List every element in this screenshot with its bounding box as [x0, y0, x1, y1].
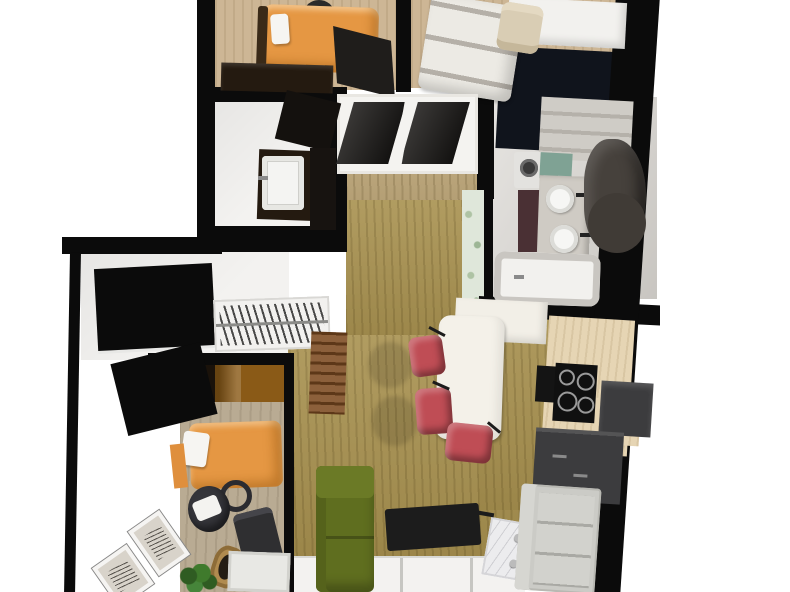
bathtub-basin	[503, 260, 590, 299]
washer-door-icon	[520, 159, 538, 177]
kitchen	[520, 310, 670, 510]
main-bathroom	[492, 97, 658, 309]
cabinet-handle-icon	[552, 454, 566, 458]
round-sink	[550, 225, 578, 253]
chair-shadow	[368, 342, 412, 388]
bedroom3	[90, 400, 290, 592]
bedroom2	[411, 0, 646, 100]
outer-wall-left-lower	[64, 252, 81, 592]
armchair-gray	[514, 483, 601, 592]
rug-black	[385, 503, 482, 551]
desk-white	[227, 551, 290, 592]
plant-icon	[176, 564, 218, 592]
floor-plan-render	[0, 0, 790, 592]
burner-icon	[558, 369, 575, 386]
burner-icon	[577, 396, 595, 414]
mirror-panel-dark	[275, 90, 341, 152]
curved-tub-lobe	[588, 193, 646, 253]
red-chair	[444, 422, 494, 465]
armchair-cushions	[533, 493, 595, 589]
shelf-black	[310, 148, 336, 230]
burner-icon	[576, 372, 595, 391]
closet-door-dark	[333, 26, 395, 98]
sofa-cushion-line	[326, 536, 374, 539]
cabinet-handle-icon	[573, 474, 587, 478]
balcony-door-frame	[470, 558, 473, 592]
sofa-green	[316, 466, 374, 592]
bed-pillow	[270, 13, 290, 44]
hall-wardrobes	[337, 94, 478, 174]
balcony-door-frame	[400, 558, 403, 592]
chair-shadow	[372, 396, 418, 446]
headboard-cushions	[496, 1, 545, 55]
desk-dark	[221, 63, 334, 94]
sideboard-wood	[309, 331, 348, 414]
burner-icon	[557, 391, 578, 412]
red-chair	[407, 334, 446, 378]
cooktop	[552, 363, 597, 423]
round-sink	[546, 185, 574, 213]
small-bathroom	[214, 96, 334, 230]
sofa-armrest	[316, 466, 374, 498]
background-mask	[660, 0, 790, 592]
tv-screen	[94, 263, 216, 351]
faucet-icon	[258, 176, 268, 180]
dressing-area	[81, 252, 351, 422]
wall-floral-hallway	[462, 190, 484, 312]
appliance-block-dark	[598, 380, 653, 437]
tub-faucet-icon	[514, 275, 524, 279]
bedroom1	[197, 0, 411, 102]
sink-white	[262, 156, 304, 210]
